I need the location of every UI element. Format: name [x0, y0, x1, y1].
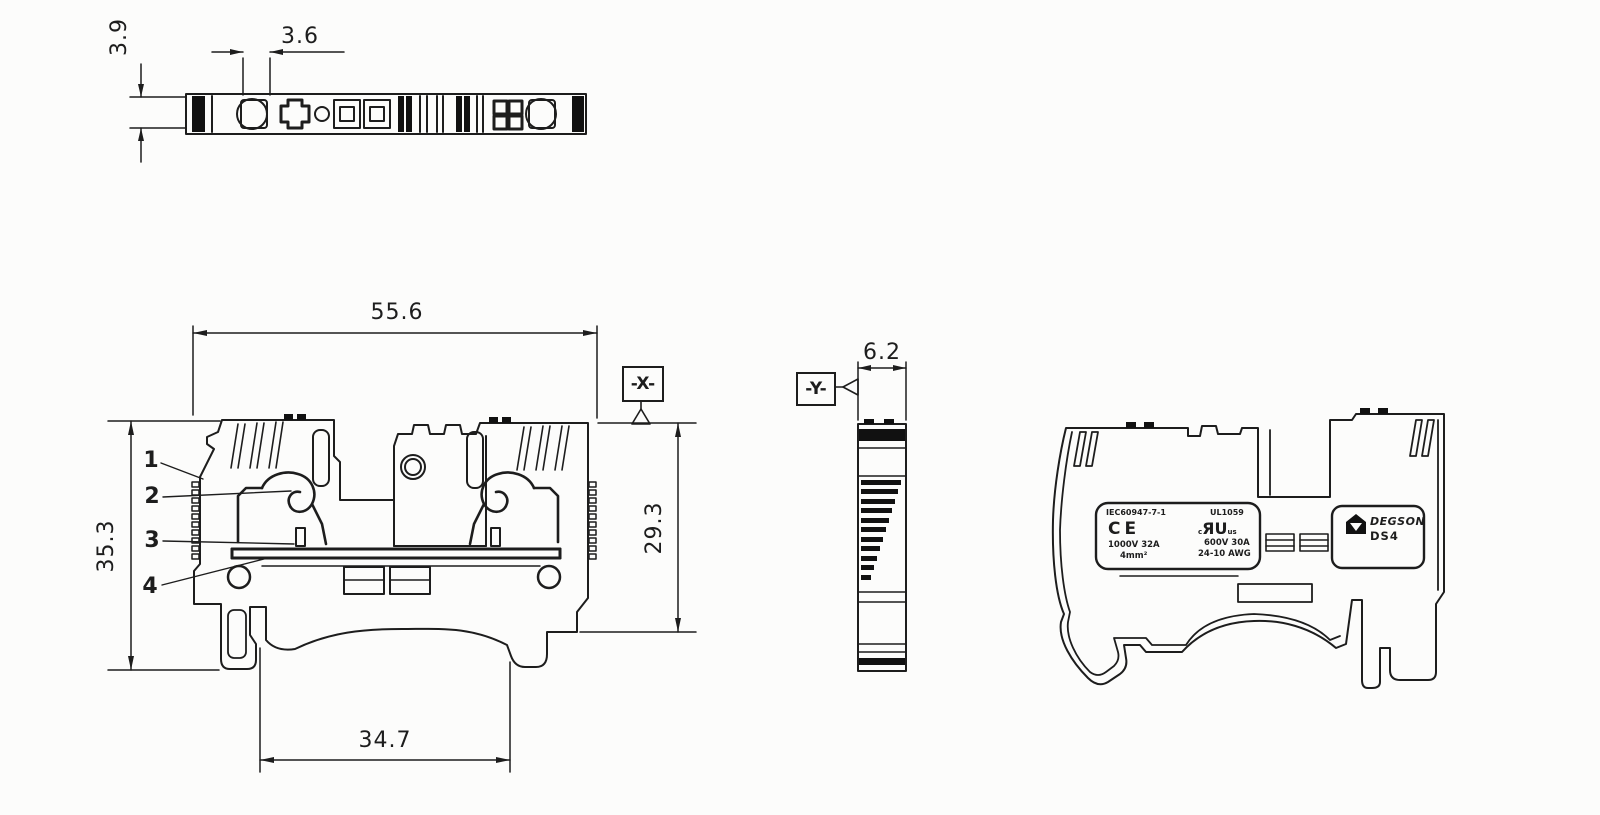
spring-clamp-left [238, 473, 326, 546]
engineering-drawing-sheet: 3.9 3.6 55.6 35.3 29.3 34.7 6.2 1 2 3 4 … [0, 0, 1600, 815]
screwdriver-slot-left [281, 100, 309, 128]
end-cap-right [572, 96, 584, 132]
dim-35-3-linework [108, 421, 220, 670]
end-cap-left [192, 96, 205, 132]
top-view-linework [186, 94, 586, 134]
callout-4: 4 [139, 574, 161, 599]
rating-iec-text: 1000V 32A [1108, 541, 1160, 550]
wire-funnel-slats [231, 422, 569, 470]
jumper-shaft-marks [1266, 534, 1328, 551]
dimension-29-3: 29.3 [642, 496, 666, 560]
dim-55-6-linework [193, 326, 597, 418]
side-view-linework [858, 419, 906, 671]
dim-3-9-linework [130, 64, 186, 162]
bus-bar [232, 549, 560, 558]
wire-port-circle-right [526, 99, 556, 129]
din-foot-slot [228, 610, 246, 658]
ur-mark-us: us [1227, 528, 1236, 536]
dimension-3-9: 3.9 [107, 15, 129, 59]
front-view-linework [192, 414, 596, 669]
dim-34-7-linework [260, 648, 510, 772]
datum-x-frame: -X- [622, 366, 664, 402]
front-view-outline [194, 420, 588, 669]
dimension-6-2: 6.2 [858, 340, 906, 365]
dimension-3-6: 3.6 [278, 24, 322, 49]
screw-hole-left [228, 566, 250, 588]
rating-ul-text: 600V 30A [1204, 539, 1250, 548]
callout-3: 3 [141, 528, 163, 553]
dimension-35-3: 35.3 [94, 514, 118, 578]
datum-y-frame: -Y- [796, 372, 836, 406]
model-number-text: DS4 [1370, 529, 1399, 543]
dim-6-2-linework [858, 362, 906, 420]
dim-3-6-linework [212, 49, 344, 95]
ur-recognized-mark: cЯUus [1198, 519, 1237, 538]
interlock-teeth-right [589, 482, 596, 559]
standard-iec-text: IEC60947-7-1 [1106, 509, 1166, 517]
dim-29-3-linework [580, 423, 696, 632]
wire-size-ul-text: 24-10 AWG [1198, 550, 1251, 559]
interlock-teeth-left [192, 482, 199, 559]
dimension-34-7: 34.7 [352, 728, 418, 753]
degson-logo-icon [1346, 514, 1366, 534]
datum-x-linework [632, 400, 650, 424]
brand-name-text: DEGSON [1370, 515, 1425, 528]
dimension-55-6: 55.6 [362, 300, 432, 325]
callout-1: 1 [140, 448, 162, 473]
drawing-linework [0, 0, 1600, 815]
standard-ul-text: UL1059 [1210, 509, 1244, 517]
ce-mark: CE [1108, 519, 1140, 539]
side-top-band [859, 429, 905, 441]
ur-mark-core: ЯU [1202, 519, 1227, 538]
interlock-stairs [861, 480, 901, 580]
screwdriver-slot-right [494, 101, 522, 129]
wire-size-iec-text: 4mm² [1120, 552, 1147, 561]
callout-2: 2 [141, 484, 163, 509]
screw-hole-right [538, 566, 560, 588]
